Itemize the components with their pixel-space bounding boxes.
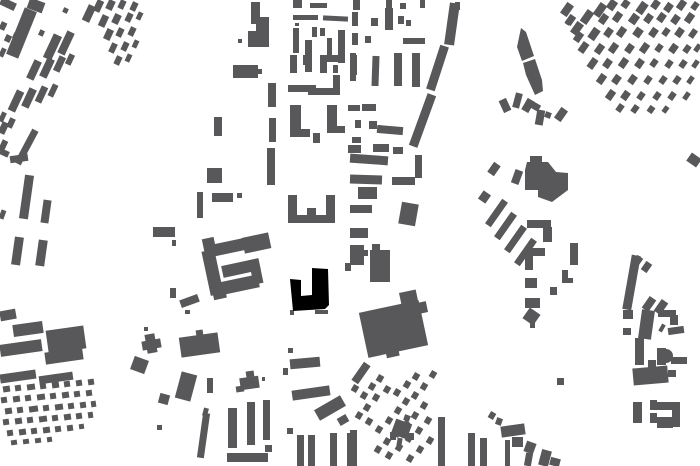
building (7, 430, 14, 437)
building (265, 445, 272, 452)
building (512, 437, 523, 447)
building (362, 104, 376, 111)
building (525, 278, 537, 288)
building (352, 137, 361, 143)
building (530, 156, 542, 163)
building (348, 105, 360, 111)
building (350, 205, 372, 213)
building (623, 310, 633, 319)
building (88, 379, 95, 386)
building (657, 417, 673, 428)
building (13, 396, 21, 403)
building (247, 402, 255, 445)
building (157, 425, 162, 430)
building (43, 427, 51, 434)
building (1, 397, 8, 404)
building (31, 428, 38, 435)
building (668, 370, 676, 377)
building (88, 412, 94, 419)
building (15, 385, 22, 392)
building (238, 39, 242, 43)
building (330, 433, 337, 466)
building (267, 148, 275, 185)
building (64, 381, 71, 388)
building (74, 391, 81, 398)
building (350, 228, 368, 238)
building (372, 244, 380, 251)
building (420, 0, 425, 8)
building (392, 177, 415, 185)
building (632, 366, 668, 386)
map-canvas (0, 0, 700, 466)
building (212, 193, 233, 202)
building (214, 117, 222, 136)
building (370, 250, 390, 282)
building (394, 53, 402, 86)
building (333, 65, 338, 73)
building (79, 424, 85, 430)
building (295, 23, 299, 26)
building (315, 310, 328, 314)
building (312, 27, 317, 37)
building (650, 400, 657, 410)
building (635, 338, 644, 365)
building (320, 55, 327, 73)
building (310, 3, 327, 8)
building (656, 402, 680, 410)
building (297, 435, 304, 466)
building (390, 432, 396, 440)
building (207, 378, 213, 393)
building (3, 386, 11, 393)
building (557, 378, 564, 385)
building (525, 248, 545, 256)
building (23, 439, 30, 445)
building (15, 418, 23, 425)
building (263, 400, 270, 440)
building (353, 0, 360, 10)
building (170, 288, 176, 298)
building (27, 383, 36, 390)
building (29, 405, 39, 412)
building (185, 310, 190, 314)
building (303, 55, 308, 65)
building (438, 417, 445, 466)
building (62, 392, 70, 399)
building (172, 240, 176, 246)
building (153, 227, 175, 237)
building (350, 430, 357, 466)
building (196, 330, 204, 337)
building (320, 28, 325, 36)
building (415, 155, 422, 178)
building (670, 315, 678, 325)
building (68, 403, 75, 410)
building (333, 75, 340, 89)
building (332, 55, 338, 62)
building (144, 327, 148, 331)
building (262, 377, 265, 381)
building (17, 407, 24, 414)
building (227, 453, 268, 462)
building (371, 18, 378, 26)
building (480, 438, 487, 466)
building (236, 385, 245, 392)
building (407, 433, 414, 440)
building (283, 368, 288, 375)
building (197, 192, 203, 218)
building (207, 168, 222, 183)
building (80, 402, 87, 409)
building (11, 440, 18, 446)
building (27, 417, 34, 424)
building (268, 83, 276, 107)
figure-ground-map (0, 0, 700, 466)
building (5, 408, 13, 415)
building (400, 3, 406, 9)
building (327, 105, 337, 133)
building (355, 120, 361, 128)
building (338, 30, 345, 63)
building (64, 414, 72, 421)
building (237, 193, 242, 198)
building (348, 145, 361, 153)
building (3, 419, 10, 426)
building (50, 393, 57, 400)
building (650, 413, 657, 423)
building (37, 393, 46, 400)
building (287, 428, 293, 434)
building (86, 390, 93, 397)
building (350, 245, 364, 265)
building (550, 287, 557, 295)
building (398, 16, 404, 24)
building (55, 403, 64, 410)
building (299, 129, 310, 137)
building (52, 415, 59, 422)
building (406, 20, 411, 26)
building (671, 357, 687, 364)
building (35, 438, 42, 444)
building (373, 144, 389, 152)
building (40, 383, 47, 390)
building (633, 402, 642, 423)
building (258, 69, 262, 74)
building (293, 0, 302, 8)
building (269, 118, 276, 142)
building (308, 435, 315, 466)
building (290, 55, 297, 73)
building (659, 349, 673, 363)
building (525, 256, 533, 270)
building (570, 243, 578, 265)
building (293, 28, 299, 53)
building (505, 440, 510, 466)
building (39, 415, 48, 422)
building (55, 426, 62, 433)
building (365, 36, 371, 43)
building (293, 15, 318, 20)
building (47, 437, 53, 443)
building (345, 263, 351, 271)
building (530, 323, 535, 328)
building (385, 8, 393, 30)
building (358, 187, 377, 199)
building (288, 348, 293, 353)
building (527, 220, 551, 228)
building (371, 56, 379, 86)
building (393, 147, 403, 154)
building (308, 88, 340, 95)
building (350, 174, 382, 184)
building (67, 425, 74, 432)
building (246, 370, 255, 377)
building (336, 126, 345, 133)
building (672, 410, 680, 427)
building (19, 429, 27, 436)
building (412, 53, 420, 87)
building (91, 401, 97, 408)
building (468, 433, 475, 466)
building (43, 405, 50, 412)
building (76, 380, 83, 387)
building (352, 12, 358, 26)
building (369, 121, 377, 129)
building (352, 33, 358, 45)
building (562, 278, 573, 283)
building (76, 413, 83, 420)
building (233, 65, 258, 78)
building (307, 208, 316, 223)
building (623, 328, 631, 335)
building (350, 53, 356, 81)
building (364, 250, 368, 256)
building (543, 227, 552, 242)
building (386, 0, 392, 8)
building (228, 408, 237, 448)
building (327, 38, 332, 62)
building (52, 382, 60, 389)
building (525, 298, 540, 308)
building (25, 395, 32, 402)
building (403, 38, 425, 44)
building (313, 133, 320, 143)
